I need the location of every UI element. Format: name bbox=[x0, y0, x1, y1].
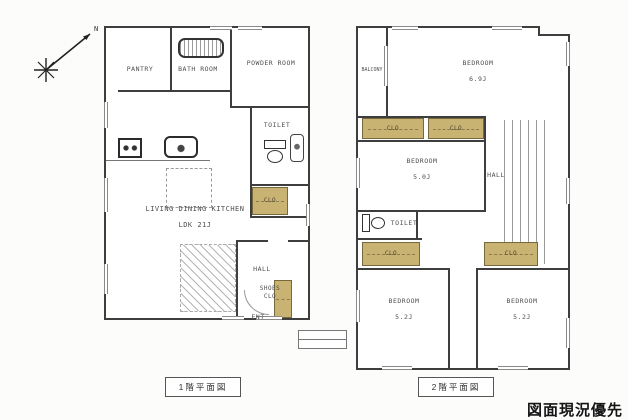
closet-2f-d-label: CLO bbox=[505, 251, 517, 257]
bathtub-icon bbox=[178, 38, 224, 58]
wall bbox=[250, 184, 308, 186]
window-opening bbox=[104, 264, 108, 294]
window-opening bbox=[498, 366, 528, 370]
wall bbox=[118, 90, 232, 92]
room-label-hall-2f: HALL bbox=[484, 172, 508, 179]
room-size-bedroom-main: 6.9J bbox=[426, 76, 530, 83]
wall bbox=[230, 106, 308, 108]
wall bbox=[288, 240, 308, 242]
floorplan-sheet: N CLO bbox=[0, 0, 628, 420]
shoes-closet-label-1: SHOES bbox=[248, 286, 292, 292]
entrance-porch bbox=[298, 330, 347, 349]
wall bbox=[358, 238, 422, 240]
room-label-entrance: ENT bbox=[240, 314, 276, 321]
room-size-bedroom-right: 5.2J bbox=[476, 314, 568, 321]
closet-2f-c: CLO bbox=[362, 242, 420, 266]
window-opening bbox=[238, 26, 262, 30]
window-opening bbox=[392, 26, 418, 30]
window-opening bbox=[210, 26, 232, 30]
roof-notch bbox=[538, 26, 570, 36]
room-label-toilet-1f: TOILET bbox=[254, 122, 300, 129]
caption-floor2: 2階平面図 bbox=[418, 377, 494, 397]
window-opening bbox=[104, 102, 108, 128]
room-label-ldk: LIVING DINING KITCHEN bbox=[120, 206, 270, 213]
toilet-icon-2f bbox=[362, 214, 370, 232]
plan-1f: CLO PANTRY BATH ROOM POWDER ROOM TOILET … bbox=[104, 26, 310, 320]
window-opening bbox=[566, 178, 570, 204]
caption-floor1: 1階平面図 bbox=[165, 377, 241, 397]
caption-floor1-label: 1階平面図 bbox=[179, 381, 228, 393]
plan-2f: CLO CLO CLO CLO BALCONY BEDROOM 6.9J BED… bbox=[356, 26, 570, 370]
north-arrow-icon: N bbox=[28, 22, 106, 88]
toilet-bowl-icon-2f bbox=[371, 217, 385, 229]
window-opening bbox=[356, 158, 360, 188]
kitchen-counter-line bbox=[106, 160, 210, 161]
north-label: N bbox=[94, 25, 98, 33]
room-size-ldk: LDK 21J bbox=[120, 222, 270, 229]
window-opening bbox=[382, 366, 412, 370]
wall bbox=[484, 116, 486, 212]
toilet-icon-1f bbox=[264, 140, 286, 149]
wall bbox=[358, 268, 450, 270]
closet-2f-b-label: CLO bbox=[450, 126, 462, 132]
washbasin-icon bbox=[290, 134, 304, 162]
caption-floor2-label: 2階平面図 bbox=[432, 381, 481, 393]
room-size-bedroom-mid: 5.0J bbox=[376, 174, 468, 181]
wall bbox=[230, 28, 232, 106]
closet-2f-d: CLO bbox=[484, 242, 538, 266]
room-label-hall-1f: HALL bbox=[244, 266, 280, 273]
closet-2f-a-label: CLO bbox=[387, 126, 399, 132]
wall bbox=[358, 210, 486, 212]
closet-1f-label: CLO bbox=[264, 198, 276, 204]
wall bbox=[476, 268, 568, 270]
toilet-bowl-icon-1f bbox=[267, 150, 283, 163]
wall bbox=[358, 140, 486, 142]
room-label-powder-room: POWDER ROOM bbox=[234, 60, 308, 67]
window-opening bbox=[566, 42, 570, 66]
room-label-bedroom-right: BEDROOM bbox=[476, 298, 568, 305]
room-label-pantry: PANTRY bbox=[116, 66, 164, 73]
priority-stamp: 図面現況優先 bbox=[527, 399, 623, 420]
room-label-toilet-2f: TOILET bbox=[384, 220, 424, 227]
room-label-balcony: BALCONY bbox=[358, 68, 386, 73]
wall bbox=[448, 268, 450, 368]
wall bbox=[236, 240, 238, 318]
closet-2f-b: CLO bbox=[428, 118, 484, 139]
closet-2f-c-label: CLO bbox=[385, 251, 397, 257]
shoes-closet-label-2: CLO bbox=[248, 294, 292, 300]
room-size-bedroom-left: 5.2J bbox=[360, 314, 448, 321]
wall bbox=[170, 28, 172, 90]
window-opening bbox=[306, 204, 310, 226]
stove-icon bbox=[118, 138, 142, 158]
wall bbox=[250, 216, 308, 218]
room-label-bedroom-main: BEDROOM bbox=[426, 60, 530, 67]
room-label-bathroom: BATH ROOM bbox=[168, 66, 228, 73]
stairs-1f bbox=[180, 244, 236, 312]
balcony-opening bbox=[384, 46, 388, 86]
closet-2f-a: CLO bbox=[362, 118, 424, 139]
window-opening bbox=[104, 178, 108, 212]
room-label-bedroom-left: BEDROOM bbox=[360, 298, 448, 305]
window-opening bbox=[492, 26, 522, 30]
room-label-bedroom-mid: BEDROOM bbox=[376, 158, 468, 165]
window-opening bbox=[566, 318, 570, 348]
kitchen-island-outline bbox=[166, 168, 212, 208]
wall bbox=[236, 240, 268, 242]
kitchen-sink-icon bbox=[164, 136, 198, 158]
